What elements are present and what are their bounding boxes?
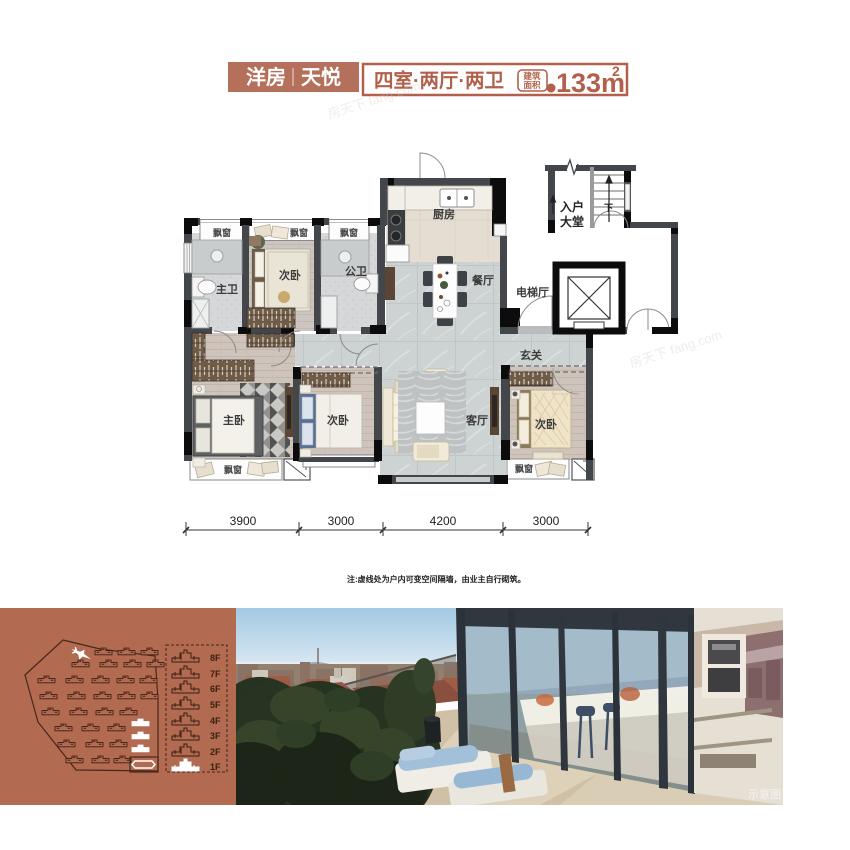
svg-text:飘窗: 飘窗	[213, 227, 231, 238]
svg-text:飘窗: 飘窗	[340, 227, 358, 238]
svg-text:示意图: 示意图	[748, 787, 781, 801]
svg-text:8F: 8F	[210, 653, 221, 663]
svg-text:飘窗: 飘窗	[224, 464, 242, 475]
svg-text:2: 2	[612, 63, 620, 79]
svg-text:主卧: 主卧	[223, 413, 245, 427]
svg-text:注:虚线处为户内可变空间隔墙，由业主自行砌筑。: 注:虚线处为户内可变空间隔墙，由业主自行砌筑。	[347, 574, 526, 584]
svg-text:公卫: 公卫	[345, 265, 367, 278]
svg-text:餐厅: 餐厅	[471, 273, 494, 287]
svg-text:玄关: 玄关	[520, 348, 542, 362]
svg-text:飘窗: 飘窗	[515, 463, 533, 474]
svg-text:1F: 1F	[210, 762, 221, 772]
svg-text:入户: 入户	[560, 199, 584, 214]
svg-text:大堂: 大堂	[560, 214, 584, 229]
svg-text:次卧: 次卧	[535, 417, 557, 431]
svg-text:4200: 4200	[430, 514, 457, 528]
svg-text:3900: 3900	[230, 514, 257, 528]
svg-text:4F: 4F	[210, 716, 221, 726]
svg-text:电梯厅: 电梯厅	[516, 285, 549, 299]
svg-text:3000: 3000	[328, 514, 355, 528]
svg-text:洋房: 洋房	[246, 65, 286, 89]
svg-text:6F: 6F	[210, 684, 221, 694]
svg-text:5F: 5F	[210, 700, 221, 710]
svg-text:面积: 面积	[523, 80, 541, 90]
svg-text:客厅: 客厅	[465, 413, 488, 427]
svg-text:飘窗: 飘窗	[290, 227, 308, 238]
svg-text:天悦: 天悦	[301, 65, 341, 89]
svg-text:次卧: 次卧	[327, 413, 349, 427]
svg-text:次卧: 次卧	[279, 268, 301, 282]
svg-text:下: 下	[604, 203, 613, 213]
svg-text:3F: 3F	[210, 731, 221, 741]
svg-text:7F: 7F	[210, 669, 221, 679]
svg-text:主卫: 主卫	[216, 282, 238, 296]
svg-text:3000: 3000	[533, 514, 560, 528]
svg-text:2F: 2F	[210, 747, 221, 757]
svg-text:厨房: 厨房	[433, 207, 455, 221]
